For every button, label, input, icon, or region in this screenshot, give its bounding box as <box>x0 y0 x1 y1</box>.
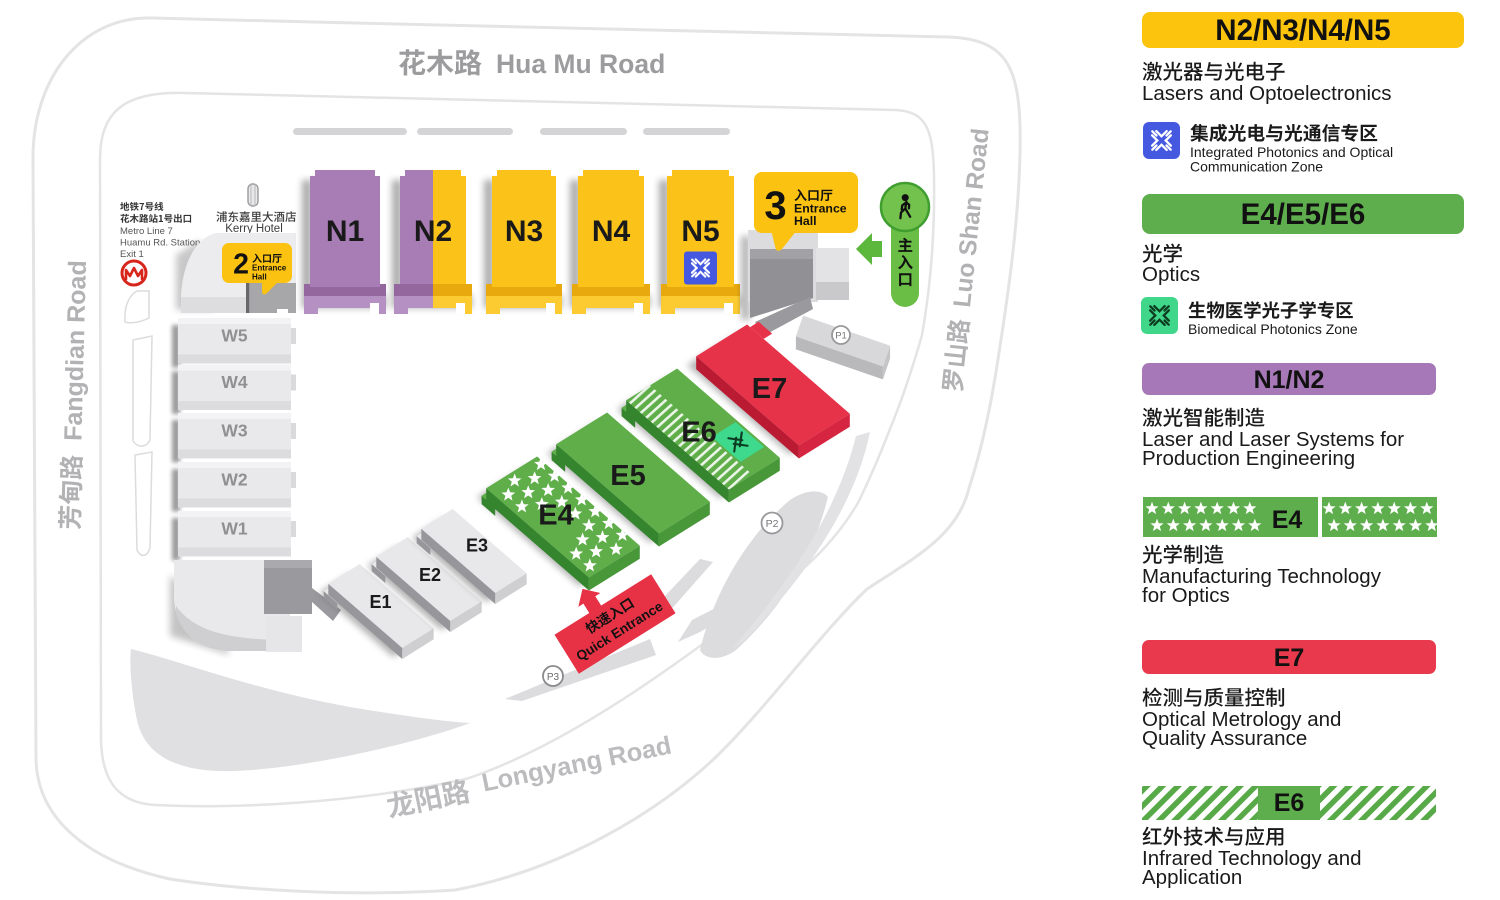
svg-text:W5: W5 <box>221 326 248 346</box>
svg-text:Lasers and Optoelectronics: Lasers and Optoelectronics <box>1142 82 1392 105</box>
svg-text:N4: N4 <box>592 215 631 248</box>
svg-text:Biomedical Photonics Zone: Biomedical Photonics Zone <box>1188 321 1358 337</box>
svg-text:E7: E7 <box>1274 644 1305 672</box>
svg-text:P1: P1 <box>835 331 847 342</box>
svg-text:N3: N3 <box>505 215 543 248</box>
svg-text:E6: E6 <box>681 417 716 449</box>
svg-text:Production Engineering: Production Engineering <box>1142 447 1355 470</box>
svg-text:N2: N2 <box>414 215 452 248</box>
svg-text:W1: W1 <box>221 519 248 539</box>
svg-text:P3: P3 <box>547 672 560 683</box>
svg-text:Fangdian Road: Fangdian Road <box>59 260 92 441</box>
svg-text:W4: W4 <box>221 372 248 392</box>
svg-text:Hall: Hall <box>794 214 817 228</box>
svg-text:P2: P2 <box>766 518 779 530</box>
svg-text:Entrance: Entrance <box>252 264 287 273</box>
svg-text:Application: Application <box>1142 866 1242 889</box>
svg-text:E5: E5 <box>610 460 645 492</box>
svg-text:W2: W2 <box>221 470 248 490</box>
svg-text:for Optics: for Optics <box>1142 584 1230 607</box>
svg-text:E1: E1 <box>369 592 391 612</box>
svg-text:N1: N1 <box>326 215 364 248</box>
svg-text:2: 2 <box>233 249 249 281</box>
svg-text:Exit 1: Exit 1 <box>120 249 144 260</box>
svg-text:E4/E5/E6: E4/E5/E6 <box>1241 198 1366 231</box>
svg-text:E6: E6 <box>1274 789 1305 817</box>
svg-text:Hua Mu Road: Hua Mu Road <box>496 49 665 79</box>
svg-text:Quality Assurance: Quality Assurance <box>1142 727 1307 750</box>
svg-text:E4: E4 <box>538 500 573 532</box>
svg-text:N2/N3/N4/N5: N2/N3/N4/N5 <box>1215 14 1390 47</box>
svg-text:E7: E7 <box>752 373 787 405</box>
svg-text:Communication Zone: Communication Zone <box>1190 159 1323 175</box>
svg-text:E4: E4 <box>1272 506 1303 534</box>
svg-text:Optics: Optics <box>1142 263 1200 286</box>
svg-text:3: 3 <box>764 184 786 228</box>
svg-text:Hall: Hall <box>252 273 267 282</box>
svg-text:Huamu Rd. Station: Huamu Rd. Station <box>120 238 200 249</box>
svg-text:E3: E3 <box>466 536 488 556</box>
svg-text:N5: N5 <box>681 215 719 248</box>
svg-text:W3: W3 <box>221 421 248 441</box>
svg-text:N1/N2: N1/N2 <box>1254 366 1325 394</box>
svg-text:Metro Line 7: Metro Line 7 <box>120 226 173 237</box>
svg-text:E2: E2 <box>419 565 441 585</box>
